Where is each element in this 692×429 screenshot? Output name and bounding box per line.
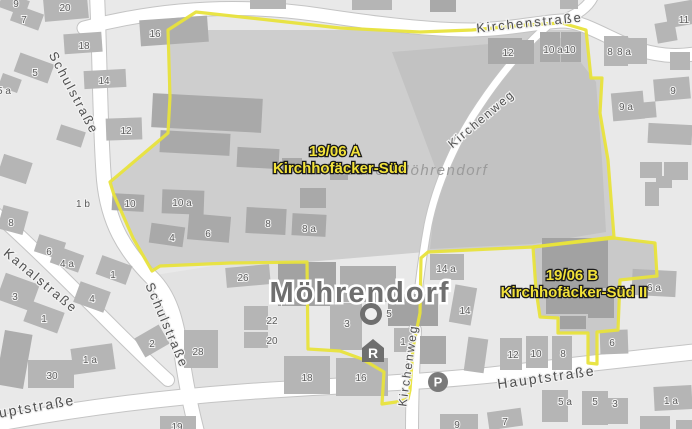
- house-number: 9: [13, 0, 19, 10]
- house-number: 16: [355, 373, 367, 384]
- building: [654, 20, 677, 43]
- house-number: 8 a: [617, 47, 631, 58]
- house-number: 6: [609, 338, 615, 349]
- house-number: 14: [459, 306, 471, 317]
- house-number: 20: [266, 336, 278, 347]
- building: [645, 182, 659, 206]
- house-number: 1: [110, 270, 116, 281]
- building: [159, 130, 230, 156]
- zone-label-a-line2: Kirchhofäcker-Süd: [273, 160, 407, 177]
- zone-label-a-line1: 19/06 A: [309, 143, 361, 160]
- house-number: 3: [612, 399, 618, 410]
- house-number: 7: [21, 15, 27, 26]
- house-number: 8: [265, 219, 271, 230]
- building: [670, 52, 690, 70]
- house-number: 1 a: [664, 396, 678, 407]
- house-number: 3: [12, 292, 18, 303]
- house-number: 30: [46, 371, 58, 382]
- house-number: 18: [301, 373, 313, 384]
- map-canvas[interactable]: 920716185145 a121 b1010 a4688 a864 a1341…: [0, 0, 692, 429]
- circle-icon[interactable]: [363, 306, 380, 323]
- building: [430, 0, 456, 12]
- house-number: 9 a: [619, 102, 633, 113]
- building: [676, 420, 692, 429]
- house-number: 6 a: [647, 283, 661, 294]
- building: [250, 0, 286, 9]
- house-number: 10 a: [543, 45, 563, 56]
- building: [608, 398, 628, 424]
- house-number: 18: [78, 41, 90, 52]
- house-number: 1 a: [83, 355, 97, 366]
- building: [648, 123, 692, 145]
- building: [420, 336, 446, 364]
- moehrendorf-planning-map[interactable]: 920716185145 a121 b1010 a4688 a864 a1341…: [0, 0, 692, 429]
- house-number: 22: [266, 316, 278, 327]
- house-number: 7: [502, 417, 508, 428]
- house-number: 8: [560, 349, 566, 360]
- rathaus-icon-letter: R: [368, 345, 378, 361]
- building: [352, 0, 392, 10]
- house-number: 8 a: [302, 224, 316, 235]
- house-number: 19: [171, 422, 183, 429]
- building: [639, 101, 656, 118]
- building: [300, 188, 326, 208]
- town-label: Möhrendorf: [269, 277, 450, 309]
- house-number: 1 b: [76, 199, 90, 210]
- house-number: 12: [502, 48, 514, 59]
- house-number: 16: [149, 29, 161, 40]
- house-number: 5 a: [0, 86, 11, 97]
- house-number: 2: [149, 339, 155, 350]
- house-number: 4: [89, 294, 95, 305]
- house-number: 3: [344, 319, 350, 330]
- house-number: 5: [592, 397, 598, 408]
- house-number: 9: [454, 420, 460, 429]
- house-number: 6: [205, 229, 211, 240]
- house-number: 4: [169, 233, 175, 244]
- house-number: 5: [32, 68, 38, 79]
- house-number: 14 a: [436, 264, 456, 275]
- house-number: 10 a: [172, 198, 192, 209]
- building: [244, 306, 268, 330]
- house-number: 28: [192, 347, 204, 358]
- house-number: 10: [564, 45, 576, 56]
- house-number: 26: [237, 273, 249, 284]
- house-number: 10: [530, 349, 542, 360]
- house-number: 12: [507, 350, 519, 361]
- zone-label-b-line2: Kirchhofäcker-Süd II: [501, 284, 648, 301]
- house-number: 5: [386, 309, 392, 320]
- building: [560, 0, 578, 9]
- house-number: 14: [98, 76, 110, 87]
- building: [640, 416, 670, 429]
- building: [522, 40, 534, 64]
- house-number: 5 a: [558, 397, 572, 408]
- house-number: 9: [670, 86, 676, 97]
- house-number: 8: [607, 47, 613, 58]
- building: [560, 316, 586, 329]
- building: [640, 162, 662, 178]
- zone-label-b-line1: 19/06 B: [546, 267, 599, 284]
- house-number: 1: [41, 314, 47, 325]
- house-number: 8: [8, 218, 14, 229]
- house-number: 4 a: [60, 259, 74, 270]
- house-number: 10: [124, 199, 136, 210]
- parking-icon-letter: P: [434, 375, 443, 390]
- house-number: 20: [59, 3, 71, 14]
- house-number: 6: [46, 247, 52, 258]
- house-number: 11: [679, 15, 690, 26]
- house-number: 12: [120, 126, 132, 137]
- building: [244, 332, 268, 348]
